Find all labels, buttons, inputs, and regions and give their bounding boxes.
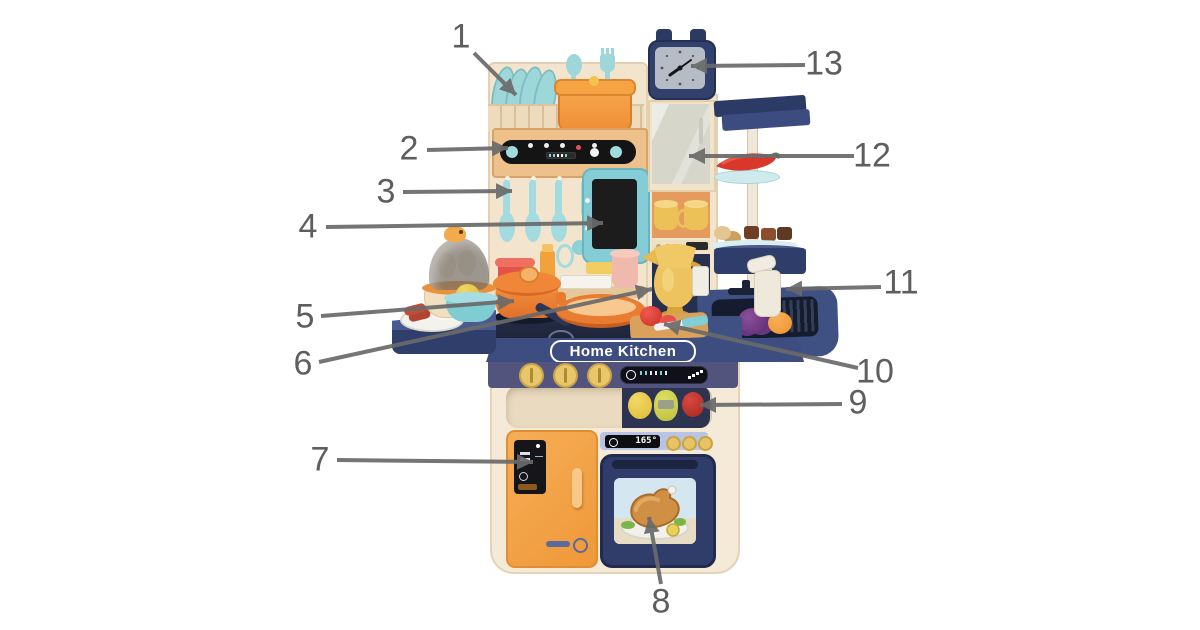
callout-3: 3 bbox=[377, 173, 396, 212]
callout-13: 13 bbox=[805, 45, 843, 84]
callout-2: 2 bbox=[400, 130, 419, 169]
product-diagram: Home Kitchen 165° bbox=[0, 0, 1200, 630]
callout-10: 10 bbox=[856, 353, 894, 392]
callout-12: 12 bbox=[853, 137, 891, 176]
callout-1: 1 bbox=[452, 18, 471, 57]
callout-5: 5 bbox=[296, 298, 315, 337]
callout-4: 4 bbox=[299, 208, 318, 247]
callout-6: 6 bbox=[294, 345, 313, 384]
callout-8: 8 bbox=[652, 583, 671, 622]
callout-11: 11 bbox=[883, 264, 918, 303]
callout-7: 7 bbox=[311, 441, 330, 480]
callout-leader-lines bbox=[0, 0, 1200, 630]
